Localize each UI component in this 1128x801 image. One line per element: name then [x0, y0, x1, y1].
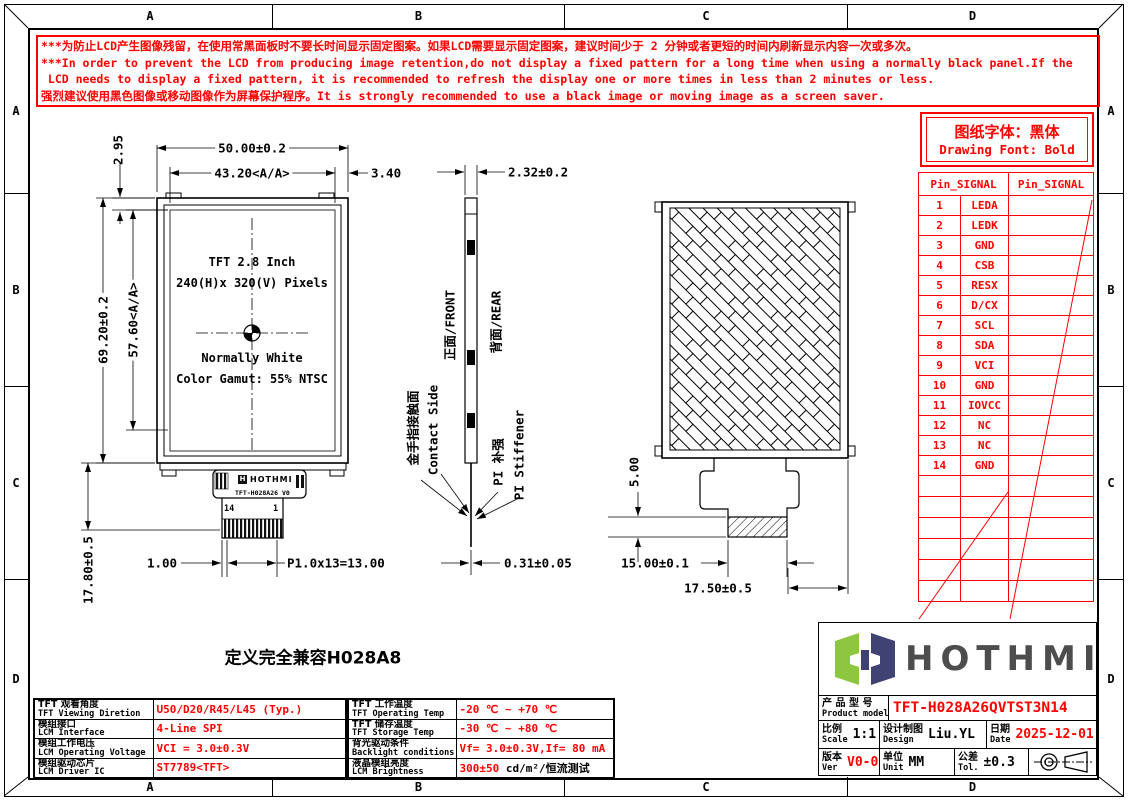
- dim-width-label: 50.00±0.2: [215, 141, 289, 156]
- dim-tail-label: 17.80±0.5: [81, 536, 96, 604]
- tolerance-value: ±0.3: [978, 755, 1014, 770]
- spec-value: -20 ℃ ~ +70 ℃: [456, 699, 614, 719]
- unit-value: MM: [903, 755, 924, 770]
- pin-no: 12: [919, 416, 961, 436]
- product-model-cell: TFT-H028A26QVTST3N14: [888, 695, 1097, 721]
- table-row: 13NC: [919, 436, 1094, 456]
- tolerance-label-cn: 公差: [958, 752, 978, 763]
- grid-label-bottom-d: D: [848, 777, 1097, 796]
- pin-1-label: 1: [273, 504, 278, 514]
- table-row: 5RESX: [919, 276, 1094, 296]
- table-row: 12NC: [919, 416, 1094, 436]
- warning-line-1: ***为防止LCD产生图像残留，在使用常黑面板时不要长时间显示固定图案。如果LC…: [41, 38, 1095, 55]
- product-label-cn: 产 品 型 号: [822, 698, 889, 709]
- pin-signal: LEDK: [961, 216, 1009, 236]
- dim-thickness-label: 2.32±0.2: [508, 165, 568, 180]
- drawing-sheet: A B C D A B C D A B C D A B C D ***为防止LC…: [0, 0, 1128, 801]
- warning-line-4: 强烈建议使用黑色图像或移动图像作为屏幕保护程序。It is strongly r…: [41, 88, 1095, 105]
- projection-cell: [1028, 748, 1097, 776]
- spec-label-en: Backlight conditions: [352, 749, 456, 758]
- unit-cell: 单位Unit MM: [879, 748, 955, 776]
- table-row-empty: [919, 560, 1094, 581]
- contact-side-en-label: Contact Side: [426, 385, 441, 475]
- table-row: 背光驱动条件Backlight conditions Vf= 3.0±0.3V,…: [348, 739, 614, 759]
- logo-cell: HOTHMI: [818, 622, 1097, 696]
- table-row: 模组工作电压LCM Operating Voltage VCI = 3.0±0.…: [34, 739, 346, 759]
- table-row: 9VCI: [919, 356, 1094, 376]
- table-row: 14GND: [919, 456, 1094, 476]
- grid-label-right-a: A: [1099, 28, 1123, 194]
- warning-line-3: LCD needs to display a fixed pattern, it…: [41, 71, 1095, 88]
- dim-top-margin-label: 2.95: [111, 135, 126, 165]
- pin-signal: SCL: [961, 316, 1009, 336]
- contact-side-cn-label: 金手指接触面: [403, 390, 422, 465]
- grid-label-top-d: D: [848, 4, 1097, 28]
- scale-value: 1:1: [848, 727, 876, 742]
- side-view-drawing: [421, 165, 519, 575]
- spec-value: VCI = 3.0±0.3V: [153, 739, 346, 759]
- pin-no: 8: [919, 336, 961, 356]
- grid-band-right: A B C D: [1099, 28, 1123, 777]
- pin-no: 5: [919, 276, 961, 296]
- dim-pitch-label: P1.0x13=13.00: [287, 556, 385, 571]
- pin-signal: LEDA: [961, 196, 1009, 216]
- scale-label-cn: 比例: [822, 724, 848, 735]
- dim-height-label: 69.20±0.2: [96, 293, 111, 367]
- grid-label-top-c: C: [565, 4, 848, 28]
- dim-stiffener-height-label: 5.00: [627, 454, 642, 490]
- fpc-model-text: TFT-H028A26 V0: [235, 489, 290, 497]
- pin-signal: NC: [961, 436, 1009, 456]
- pin-spare: [1009, 256, 1094, 276]
- spec-value-number: 300±50: [460, 762, 500, 775]
- table-row: 11IOVCC: [919, 396, 1094, 416]
- pin-no: 6: [919, 296, 961, 316]
- table-row-empty: [919, 518, 1094, 539]
- pin-signal: GND: [961, 376, 1009, 396]
- date-cell: 日期Date 2025-12-01: [986, 720, 1097, 749]
- table-row: 10GND: [919, 376, 1094, 396]
- font-note-box: 图纸字体：黑体 Drawing Font: Bold: [920, 112, 1094, 167]
- grid-band-left: A B C D: [4, 28, 28, 777]
- table-row: 模组接口LCM Interface 4-Line SPI: [34, 719, 346, 739]
- third-angle-projection-icon: [1033, 750, 1093, 774]
- screen-size-text: TFT 2.8 Inch: [176, 252, 328, 273]
- spec-label-en: LCM Brightness: [352, 768, 456, 777]
- table-row: 6D/CX: [919, 296, 1094, 316]
- grid-label-left-d: D: [4, 580, 28, 777]
- table-row: 8SDA: [919, 336, 1094, 356]
- pin-signal: VCI: [961, 356, 1009, 376]
- pin-no: 7: [919, 316, 961, 336]
- retention-warning-box: ***为防止LCD产生图像残留，在使用常黑面板时不要长时间显示固定图案。如果LC…: [36, 35, 1100, 107]
- pin-spare: [1009, 296, 1094, 316]
- pin-no: 13: [919, 436, 961, 456]
- warning-line-2: ***In order to prevent the LCD from prod…: [41, 55, 1095, 72]
- product-label-cell: 产 品 型 号 Product model: [818, 695, 889, 721]
- grid-label-bottom-c: C: [565, 777, 848, 796]
- pin-spare: [1009, 456, 1094, 476]
- pin-no: 1: [919, 196, 961, 216]
- table-row: TFT 储存温度TFT Storage Temp -30 ℃ ~ +80 ℃: [348, 719, 614, 739]
- design-label-en: Design: [883, 735, 923, 745]
- version-value: V0-0: [842, 755, 878, 770]
- table-row: 模组驱动芯片LCM Driver IC ST7789<TFT>: [34, 758, 346, 778]
- grid-label-left-a: A: [4, 28, 28, 194]
- screen-gamut-text: Color Gamut: 55% NTSC: [176, 369, 328, 390]
- table-row: 液晶模组亮度LCM Brightness 300±50 cd/m²/恒流测试: [348, 758, 614, 778]
- tolerance-cell: 公差Tol. ±0.3: [954, 748, 1029, 776]
- pin-spare: [1009, 376, 1094, 396]
- unit-label-en: Unit: [883, 763, 903, 773]
- grid-label-top-a: A: [28, 4, 273, 28]
- rear-view-drawing: [608, 202, 855, 594]
- dim-width-aa-label: 43.20<A/A>: [211, 166, 292, 181]
- table-row: 2LEDK: [919, 216, 1094, 236]
- date-label-en: Date: [990, 735, 1010, 745]
- pin-no: 11: [919, 396, 961, 416]
- spec-label-en: TFT Operating Temp: [352, 710, 456, 719]
- pi-stiffener-cn-label: PI 补强: [488, 438, 507, 486]
- spec-value: ST7789<TFT>: [153, 758, 346, 778]
- grid-label-left-b: B: [4, 194, 28, 387]
- version-cell: 版本Ver V0-0: [818, 748, 880, 776]
- spec-value: -30 ℃ ~ +80 ℃: [456, 719, 614, 739]
- table-row: 7SCL: [919, 316, 1094, 336]
- hothmi-logo: HOTHMI: [819, 631, 1097, 687]
- spec-label-en: LCM Driver IC: [38, 768, 153, 777]
- font-note-en: Drawing Font: Bold: [939, 142, 1074, 158]
- pin-spare: [1009, 416, 1094, 436]
- pin-no: 2: [919, 216, 961, 236]
- pin-signal: D/CX: [961, 296, 1009, 316]
- pin-signal: GND: [961, 236, 1009, 256]
- pin-no: 4: [919, 256, 961, 276]
- scale-cell: 比例Scale 1:1: [818, 720, 880, 749]
- pin-table-header-left: Pin_SIGNAL: [919, 173, 1009, 196]
- pin-spare: [1009, 316, 1094, 336]
- pin-spare: [1009, 216, 1094, 236]
- design-cell: 设计制图Design Liu.YL: [879, 720, 987, 749]
- spec-table-right: TFT 工作温度TFT Operating Temp -20 ℃ ~ +70 ℃…: [347, 698, 615, 779]
- product-label-en: Product model: [822, 709, 889, 719]
- date-label-cn: 日期: [990, 724, 1010, 735]
- pin-14-label: 14: [224, 504, 234, 514]
- compatibility-note: 定义完全兼容H028A8: [225, 644, 402, 669]
- pin-signal: GND: [961, 456, 1009, 476]
- hothmi-logo-mark-icon: [833, 631, 897, 687]
- pin-no: 3: [919, 236, 961, 256]
- screen-resolution-text: 240(H)x 320(V) Pixels: [176, 273, 328, 294]
- font-note-cn: 图纸字体：黑体: [954, 122, 1059, 142]
- dim-side-margin-label: 3.40: [371, 166, 401, 181]
- grid-band-bottom: A B C D: [28, 777, 1097, 796]
- spec-label-en: TFT Storage Temp: [352, 729, 456, 738]
- pin-spare: [1009, 396, 1094, 416]
- pin-spare: [1009, 336, 1094, 356]
- table-row: 3GND: [919, 236, 1094, 256]
- grid-label-right-c: C: [1099, 387, 1123, 580]
- screen-spec-text-top: TFT 2.8 Inch 240(H)x 320(V) Pixels: [176, 252, 328, 294]
- pi-stiffener-en-label: PI Stiffener: [512, 410, 527, 500]
- screen-spec-text-bottom: Normally White Color Gamut: 55% NTSC: [176, 348, 328, 390]
- grid-label-bottom-a: A: [28, 777, 273, 796]
- table-row: TFT 工作温度TFT Operating Temp -20 ℃ ~ +70 ℃: [348, 699, 614, 719]
- version-label-cn: 版本: [822, 752, 842, 763]
- dim-tail-width-label: 17.50±0.5: [684, 581, 752, 596]
- spec-value: Vf= 3.0±0.3V,If= 80 mA: [456, 739, 614, 759]
- title-block: HOTHMI 产 品 型 号 Product model TFT-H028A26…: [818, 622, 1097, 776]
- font-note-inner: 图纸字体：黑体 Drawing Font: Bold: [926, 117, 1088, 162]
- table-row: 4CSB: [919, 256, 1094, 276]
- fpc-brand-text: HOTHMI: [250, 475, 293, 484]
- design-value: Liu.YL: [923, 727, 975, 742]
- center-mark-icon: [244, 325, 260, 341]
- pin-no: 9: [919, 356, 961, 376]
- pin-signal-table: Pin_SIGNAL Pin_SIGNAL 1LEDA 2LEDK 3GND 4…: [918, 172, 1094, 602]
- spec-label-en: TFT Viewing Diretion: [38, 710, 153, 719]
- pin-spare: [1009, 196, 1094, 216]
- pin-no: 14: [919, 456, 961, 476]
- pin-signal: CSB: [961, 256, 1009, 276]
- table-row: TFT 观看角度TFT Viewing Diretion U50/D20/R45…: [34, 699, 346, 719]
- scale-label-en: Scale: [822, 735, 848, 745]
- pin-spare: [1009, 236, 1094, 256]
- grid-label-left-c: C: [4, 387, 28, 580]
- grid-label-top-b: B: [273, 4, 565, 28]
- rear-face-label: 背面/REAR: [486, 291, 505, 354]
- fpc-brand: H HOTHMI: [238, 475, 293, 484]
- pin-no: 10: [919, 376, 961, 396]
- pin-signal: RESX: [961, 276, 1009, 296]
- dim-pin-edge-label: 1.00: [147, 556, 177, 571]
- spec-label-en: LCM Interface: [38, 729, 153, 738]
- pin-spare: [1009, 276, 1094, 296]
- fpc-logo-icon: H: [238, 475, 247, 484]
- date-value: 2025-12-01: [1010, 727, 1093, 742]
- screen-mode-text: Normally White: [176, 348, 328, 369]
- grid-label-right-d: D: [1099, 580, 1123, 777]
- grid-band-top: A B C D: [28, 4, 1097, 28]
- grid-label-right-b: B: [1099, 194, 1123, 387]
- pin-signal: NC: [961, 416, 1009, 436]
- spec-value: 4-Line SPI: [153, 719, 346, 739]
- dim-height-aa-label: 57.60<A/A>: [126, 279, 141, 360]
- design-label-cn: 设计制图: [883, 724, 923, 735]
- dim-stiffener-width-label: 15.00±0.1: [621, 556, 689, 571]
- spec-value-suffix: cd/m²/恒流测试: [499, 762, 589, 775]
- pin-signal: IOVCC: [961, 396, 1009, 416]
- spec-label-en: LCM Operating Voltage: [38, 749, 153, 758]
- pin-spare: [1009, 436, 1094, 456]
- version-label-en: Ver: [822, 763, 842, 773]
- front-face-label: 正面/FRONT: [440, 290, 459, 360]
- spec-table-left: TFT 观看角度TFT Viewing Diretion U50/D20/R45…: [33, 698, 347, 779]
- table-row: 1LEDA: [919, 196, 1094, 216]
- tolerance-label-en: Tol.: [958, 763, 978, 773]
- pin-spare: [1009, 356, 1094, 376]
- grid-label-bottom-b: B: [273, 777, 565, 796]
- product-model-value: TFT-H028A26QVTST3N14: [889, 700, 1068, 716]
- table-row-empty: [919, 581, 1094, 602]
- table-row-empty: [919, 476, 1094, 497]
- logo-text: HOTHMI: [905, 639, 1097, 679]
- table-row-empty: [919, 497, 1094, 518]
- dim-fpc-thickness-label: 0.31±0.05: [504, 556, 572, 571]
- pin-signal: SDA: [961, 336, 1009, 356]
- unit-label-cn: 单位: [883, 752, 903, 763]
- table-row-empty: [919, 539, 1094, 560]
- spec-value: 300±50 cd/m²/恒流测试: [456, 758, 614, 778]
- pin-table-header-right: Pin_SIGNAL: [1009, 173, 1094, 196]
- spec-value: U50/D20/R45/L45 (Typ.): [153, 699, 346, 719]
